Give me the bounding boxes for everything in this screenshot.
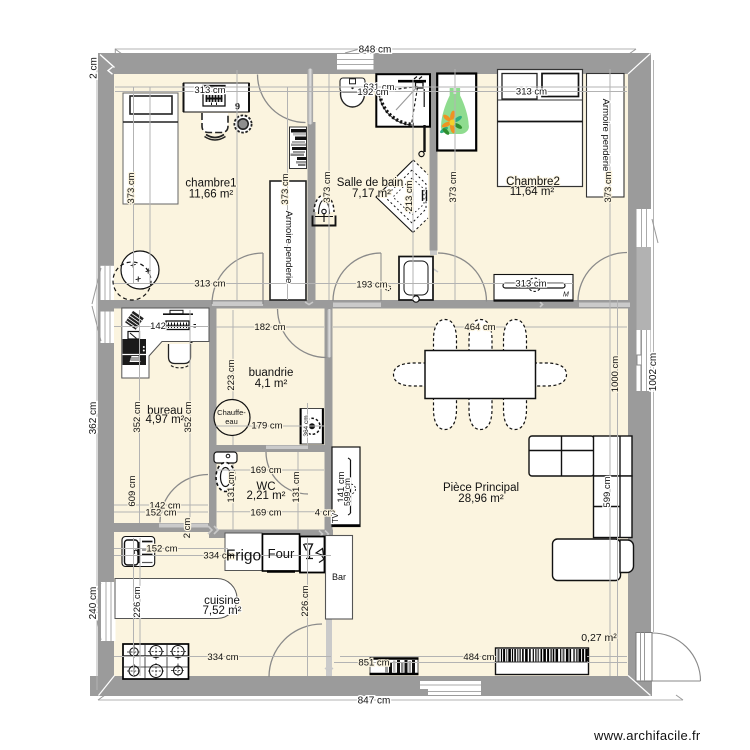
svg-text:240 cm: 240 cm <box>88 587 99 620</box>
svg-text:11,66 m²: 11,66 m² <box>189 189 234 201</box>
svg-text:Bar: Bar <box>332 572 346 582</box>
svg-text:152 cm: 152 cm <box>146 544 177 555</box>
svg-text:599 cm: 599 cm <box>602 476 613 507</box>
svg-text:2,21 m²: 2,21 m² <box>247 490 286 502</box>
svg-text:373 cm: 373 cm <box>448 171 459 202</box>
svg-text:362 cm: 362 cm <box>88 402 99 435</box>
svg-text:7,52 m²: 7,52 m² <box>203 605 242 617</box>
svg-text:313 cm: 313 cm <box>515 279 546 290</box>
svg-text:169 cm: 169 cm <box>250 508 281 519</box>
svg-text:0,27 m²: 0,27 m² <box>581 632 617 644</box>
svg-text:352 cm: 352 cm <box>132 401 143 432</box>
svg-text:313 cm: 313 cm <box>194 279 225 290</box>
svg-text:226 cm: 226 cm <box>300 585 311 616</box>
svg-text:851 cm: 851 cm <box>358 658 389 669</box>
svg-text:www.archifacile.fr: www.archifacile.fr <box>593 728 701 743</box>
svg-text:599 cm: 599 cm <box>342 478 352 506</box>
svg-text:142: 142 <box>150 321 166 332</box>
svg-text:848 cm: 848 cm <box>359 45 392 56</box>
svg-text:847 cm: 847 cm <box>358 696 391 707</box>
svg-text:7,17 m²: 7,17 m² <box>352 188 391 200</box>
svg-text:179 cm: 179 cm <box>251 421 282 432</box>
svg-text:169 cm: 169 cm <box>250 465 281 476</box>
svg-text:131 cm: 131 cm <box>291 471 302 502</box>
svg-text:Four: Four <box>268 546 295 561</box>
svg-text:313 cm: 313 cm <box>516 87 547 98</box>
svg-text:373 cm: 373 cm <box>603 171 614 202</box>
svg-text:4,1 m²: 4,1 m² <box>255 378 288 390</box>
svg-text:Armoire penderie: Armoire penderie <box>600 99 611 172</box>
svg-text:193 cm: 193 cm <box>356 280 387 291</box>
svg-text:2 cm: 2 cm <box>182 518 193 539</box>
svg-text:TV: TV <box>331 512 340 523</box>
svg-text:373 cm: 373 cm <box>126 172 137 203</box>
svg-text:4,97 m²: 4,97 m² <box>146 414 185 426</box>
svg-text:226 cm: 226 cm <box>132 586 143 617</box>
svg-text:223 cm: 223 cm <box>226 359 237 390</box>
svg-text:131 cm: 131 cm <box>226 471 237 502</box>
svg-text:334 cm: 334 cm <box>207 652 238 663</box>
svg-text:eau: eau <box>225 417 238 426</box>
svg-text:609 cm: 609 cm <box>127 475 138 506</box>
svg-text:352 cm: 352 cm <box>183 401 194 432</box>
svg-text:313 cm: 313 cm <box>194 85 225 96</box>
svg-text:Armoire penderie: Armoire penderie <box>283 211 294 284</box>
svg-text:182 cm: 182 cm <box>254 322 285 333</box>
svg-text:2 cm: 2 cm <box>89 57 100 79</box>
svg-text:373 cm: 373 cm <box>322 171 333 202</box>
svg-text:152 cm: 152 cm <box>145 508 176 519</box>
svg-text:192 cm: 192 cm <box>357 87 388 98</box>
svg-text:1000 cm: 1000 cm <box>610 356 621 393</box>
svg-text:484 cm: 484 cm <box>463 652 494 663</box>
svg-text:364 cm: 364 cm <box>303 415 310 436</box>
svg-text:Chauffe-: Chauffe- <box>217 408 246 417</box>
svg-text:464 cm: 464 cm <box>464 322 495 333</box>
svg-text:1002 cm: 1002 cm <box>648 353 659 391</box>
svg-text:11,64 m²: 11,64 m² <box>510 186 555 198</box>
svg-text:28,96 m²: 28,96 m² <box>458 493 504 505</box>
svg-text:213 cm: 213 cm <box>404 180 415 211</box>
svg-text:Frigo: Frigo <box>226 548 261 565</box>
svg-text:373 cm: 373 cm <box>280 173 291 204</box>
